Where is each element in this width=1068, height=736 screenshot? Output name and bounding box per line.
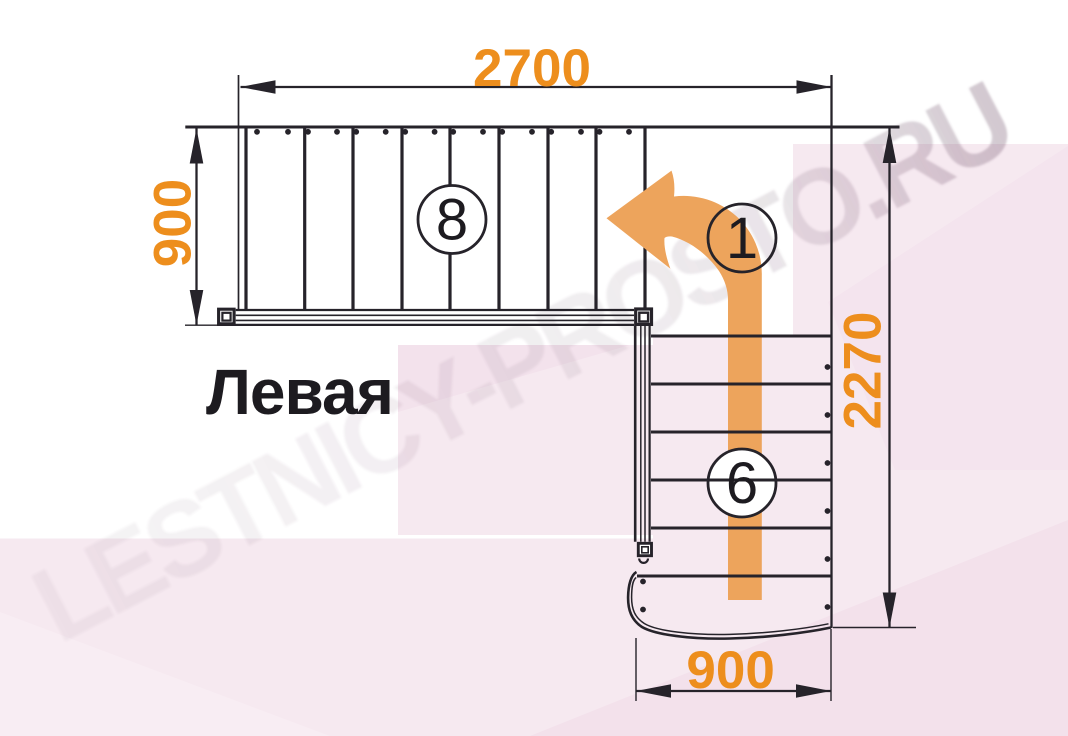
svg-text:900: 900 [144, 179, 203, 267]
svg-text:1: 1 [726, 206, 758, 271]
svg-text:8: 8 [436, 188, 468, 253]
svg-text:900: 900 [686, 641, 774, 700]
svg-text:Левая: Левая [206, 356, 393, 428]
svg-text:6: 6 [726, 451, 758, 516]
svg-text:2270: 2270 [834, 312, 893, 430]
svg-text:2700: 2700 [473, 39, 591, 98]
